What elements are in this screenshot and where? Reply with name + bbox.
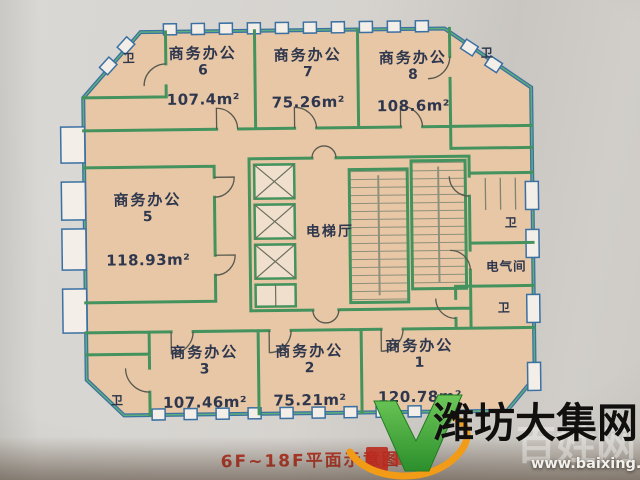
room-6-label: 商务办公 6 107.4m² bbox=[148, 45, 259, 109]
room-name: 商务办公 bbox=[259, 343, 359, 361]
room-area: 120.78m² bbox=[369, 387, 471, 406]
room-area: 118.93m² bbox=[93, 250, 203, 269]
room-2-label: 商务办公 2 75.21m² bbox=[259, 343, 360, 410]
room-number: 3 bbox=[151, 361, 257, 378]
elevator-shafts bbox=[254, 164, 296, 306]
room-8-label: 商务办公 8 108.6m² bbox=[361, 49, 466, 115]
room-number: 8 bbox=[361, 66, 465, 83]
toilet-label-right-mid: 卫 bbox=[501, 214, 521, 231]
room-area: 107.46m² bbox=[152, 393, 258, 412]
floorplan-paper: 商务办公 6 107.4m² 商务办公 7 75.26m² 商务办公 8 108… bbox=[0, 0, 640, 480]
elevator-hall-label: 电梯厅 bbox=[300, 221, 360, 242]
room-name: 商务办公 bbox=[151, 344, 257, 362]
room-area: 75.21m² bbox=[260, 391, 360, 410]
room-number: 6 bbox=[148, 62, 258, 79]
room-number: 2 bbox=[259, 360, 359, 377]
toilet-label-bottom-left: 卫 bbox=[107, 391, 127, 408]
staircases bbox=[349, 160, 467, 302]
room-number: 5 bbox=[93, 208, 203, 225]
room-name: 商务办公 bbox=[368, 337, 470, 355]
toilet-label-top-left: 卫 bbox=[119, 49, 139, 66]
toilet-label-right-low: 卫 bbox=[494, 299, 514, 316]
room-number: 1 bbox=[368, 354, 470, 371]
room-name: 商务办公 bbox=[92, 191, 202, 209]
room-1-label: 商务办公 1 120.78m² bbox=[368, 337, 471, 406]
room-number: 7 bbox=[256, 64, 360, 81]
electrical-room-label: 电气间 bbox=[477, 255, 535, 275]
plan-caption: 6F~18F平面示意图 bbox=[171, 444, 451, 472]
room-area: 75.26m² bbox=[256, 92, 360, 111]
room-name: 商务办公 bbox=[361, 49, 465, 67]
room-area: 108.6m² bbox=[361, 96, 465, 115]
room-5-label: 商务办公 5 118.93m² bbox=[92, 191, 203, 269]
room-3-label: 商务办公 3 107.46m² bbox=[151, 344, 258, 412]
toilet-label-top-right: 卫 bbox=[477, 44, 497, 61]
room-7-label: 商务办公 7 75.26m² bbox=[256, 47, 361, 112]
floorplan-photo: 商务办公 6 107.4m² 商务办公 7 75.26m² 商务办公 8 108… bbox=[0, 0, 640, 480]
room-name: 商务办公 bbox=[148, 45, 258, 63]
room-name: 商务办公 bbox=[256, 47, 360, 65]
room-area: 107.4m² bbox=[148, 90, 258, 109]
